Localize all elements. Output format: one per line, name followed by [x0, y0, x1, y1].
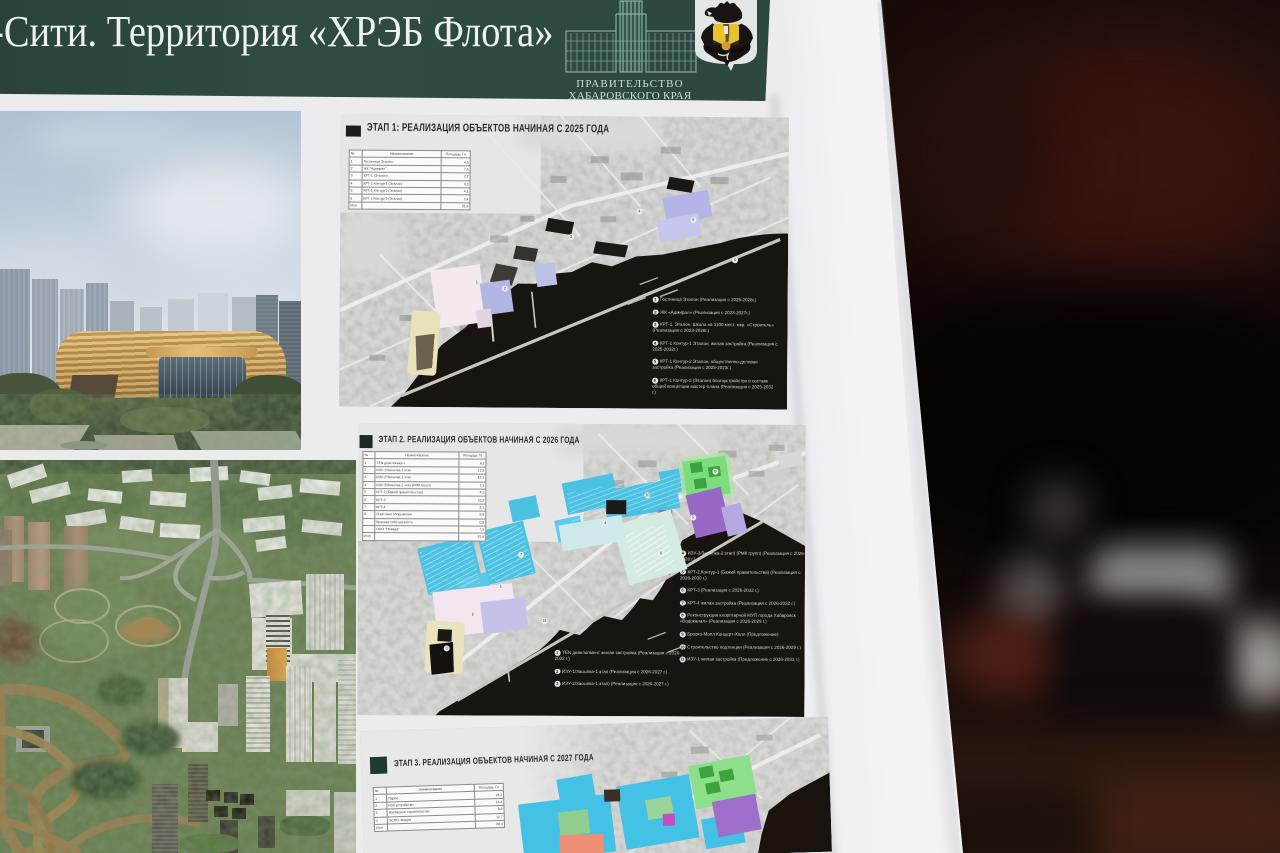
svg-text:ПРАВИТЕЛЬСТВО: ПРАВИТЕЛЬСТВО	[576, 78, 684, 90]
svg-text:ХАБАРОВСКОГО КРАЯ: ХАБАРОВСКОГО КРАЯ	[568, 90, 691, 102]
